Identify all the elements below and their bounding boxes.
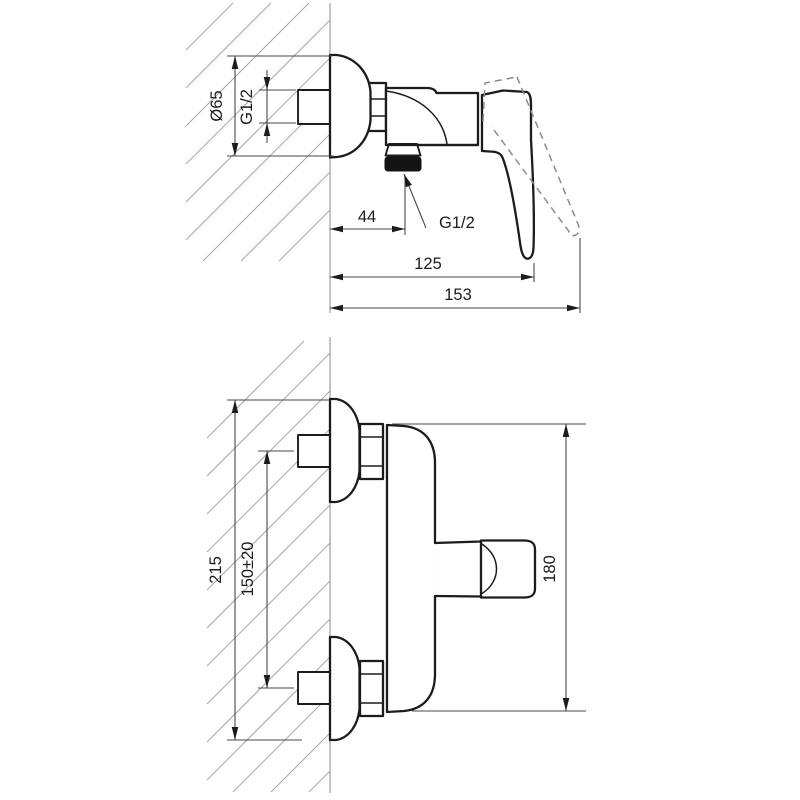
dimension-outlet-offset: 44 <box>330 177 405 235</box>
wall-hatching <box>207 341 330 792</box>
label-connection-spacing: 150±20 <box>239 542 257 597</box>
front-view: 215 150±20 180 <box>207 337 586 793</box>
drawing-canvas: Ø65 G1/2 44 G1/2 <box>0 0 800 800</box>
wall-hatching <box>186 3 330 261</box>
handle-collar <box>434 542 481 597</box>
dimension-depth-closed: 125 <box>330 255 534 282</box>
supply-pipe-bottom <box>298 672 330 704</box>
mixer-body <box>387 425 435 712</box>
outlet-thread <box>385 157 421 171</box>
label-depth-closed: 125 <box>414 255 442 273</box>
hex-nut-top <box>360 424 383 479</box>
label-outlet-offset: 44 <box>358 208 376 226</box>
dimension-inlet-thread: G1/2 <box>238 70 296 143</box>
mixer-body <box>386 88 478 145</box>
dimension-connection-spacing: 150±20 <box>239 451 294 688</box>
escutcheon <box>330 55 371 158</box>
escutcheon-top <box>330 399 360 502</box>
label-outlet-thread: G1/2 <box>439 214 475 232</box>
lever-handle <box>481 541 535 598</box>
supply-pipe <box>298 90 330 124</box>
dimension-depth-open: 153 <box>330 238 580 313</box>
leader-outlet-thread: G1/2 <box>401 173 475 232</box>
technical-drawing: Ø65 G1/2 44 G1/2 <box>0 0 800 800</box>
label-depth-open: 153 <box>444 286 472 304</box>
label-overall-height: 215 <box>207 556 225 584</box>
supply-pipe-top <box>298 435 330 467</box>
label-diameter: Ø65 <box>208 90 226 121</box>
hex-nut-bottom <box>360 661 383 716</box>
side-view: Ø65 G1/2 44 G1/2 <box>186 3 580 313</box>
label-inlet-thread: G1/2 <box>238 89 256 125</box>
escutcheon-bottom <box>330 637 360 740</box>
label-body-length: 180 <box>541 555 559 583</box>
